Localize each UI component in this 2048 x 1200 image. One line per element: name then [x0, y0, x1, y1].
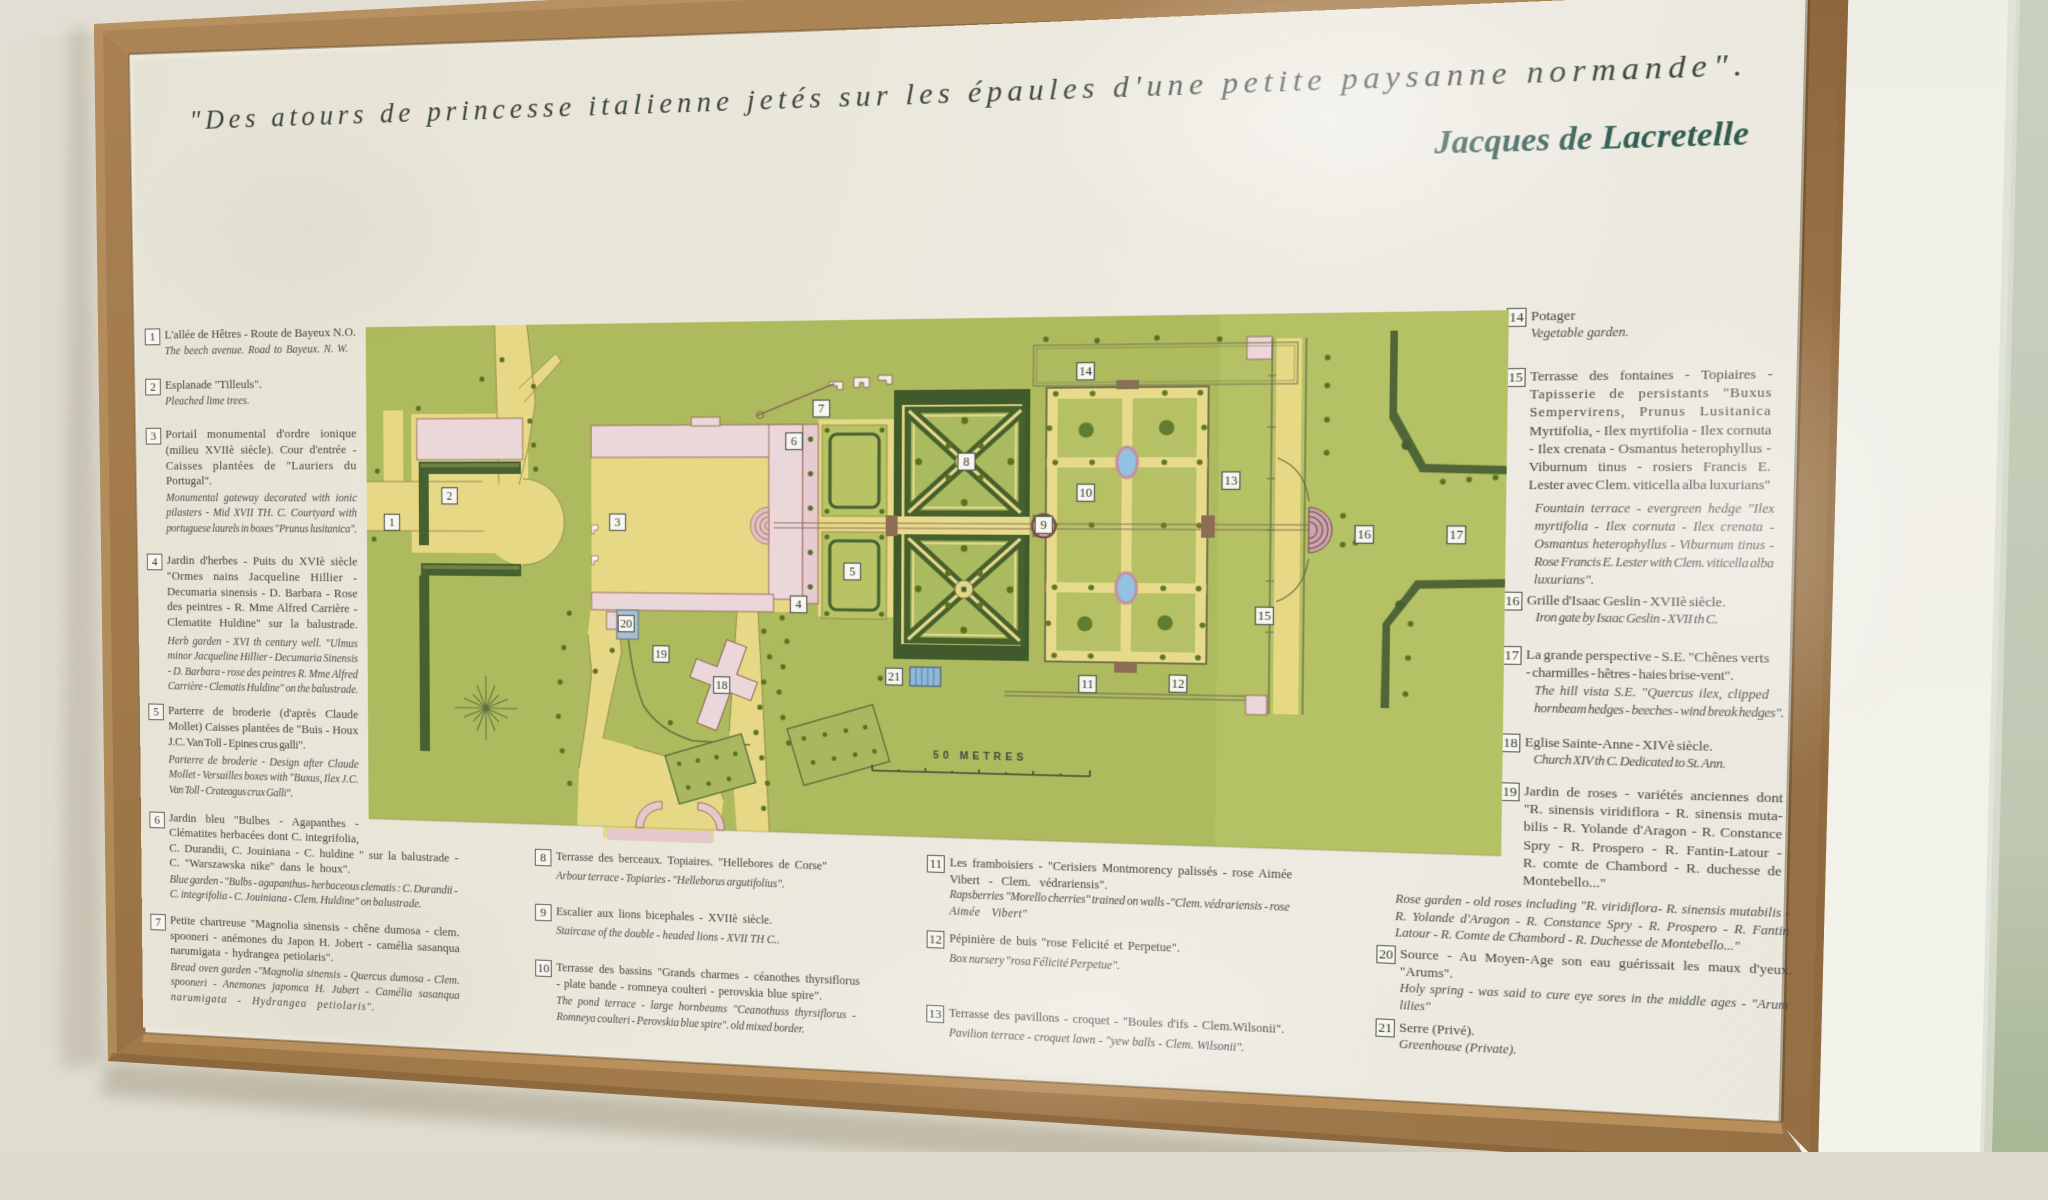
svg-text:10: 10 [1079, 487, 1092, 501]
svg-text:6: 6 [791, 436, 798, 449]
svg-text:16: 16 [1357, 529, 1371, 543]
svg-text:20: 20 [620, 618, 632, 631]
svg-text:12: 12 [1171, 678, 1184, 692]
svg-text:2: 2 [447, 491, 453, 504]
svg-text:19: 19 [655, 649, 667, 662]
svg-text:15: 15 [1258, 610, 1272, 624]
svg-text:14: 14 [1079, 366, 1092, 380]
svg-text:4: 4 [796, 599, 803, 612]
svg-text:17: 17 [1449, 529, 1463, 543]
svg-text:7: 7 [818, 403, 825, 416]
svg-text:50 METRES: 50 METRES [933, 748, 1027, 763]
svg-text:8: 8 [963, 456, 970, 469]
svg-text:1: 1 [389, 517, 395, 530]
svg-text:5: 5 [849, 566, 856, 579]
svg-text:3: 3 [615, 517, 621, 530]
svg-text:9: 9 [1041, 519, 1048, 533]
svg-text:13: 13 [1224, 475, 1238, 489]
svg-text:11: 11 [1081, 678, 1093, 692]
svg-text:18: 18 [716, 680, 728, 693]
svg-text:21: 21 [888, 671, 900, 684]
